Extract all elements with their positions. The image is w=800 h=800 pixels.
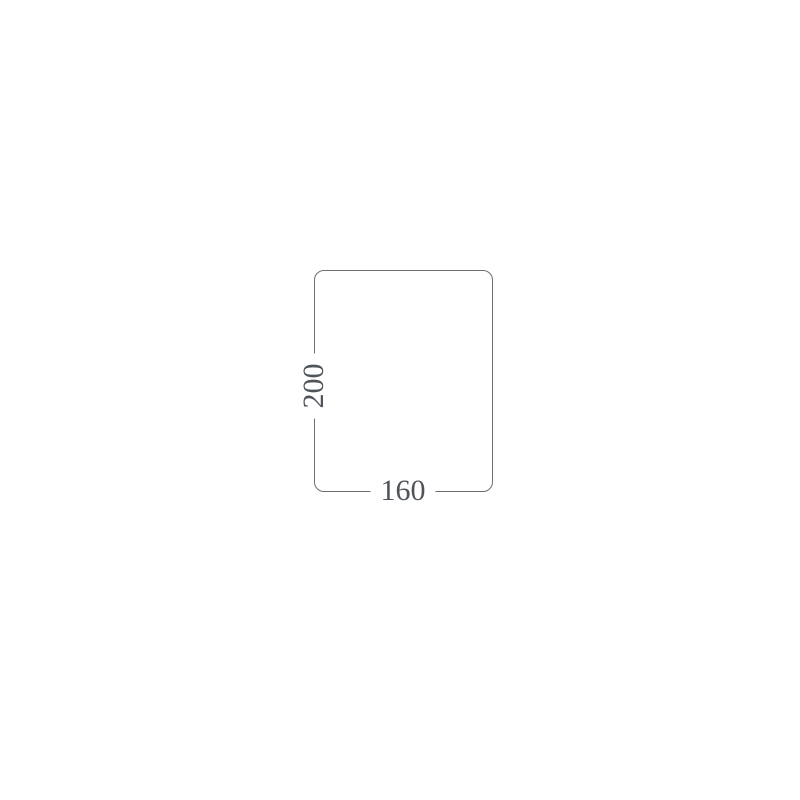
dimension-rectangle-outline xyxy=(314,270,493,492)
width-dimension-label: 160 xyxy=(371,474,436,508)
height-dimension-label: 200 xyxy=(297,354,331,419)
diagram-canvas: 200 160 xyxy=(0,0,800,800)
